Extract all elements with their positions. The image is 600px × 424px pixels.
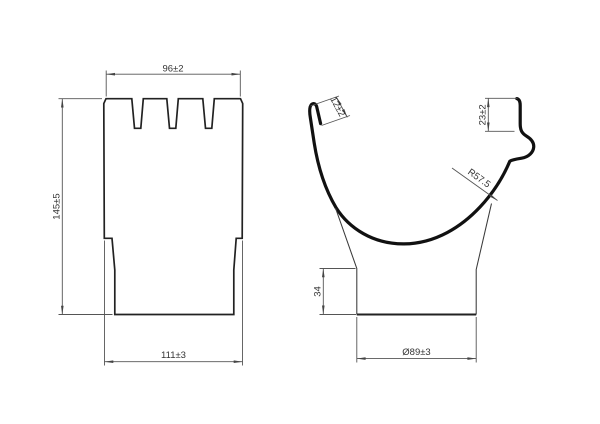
dim-bottom-width-label: 111±3 [161, 350, 186, 361]
extension-line [322, 116, 351, 126]
dim-top-width: 96±2 [106, 64, 240, 97]
radius-callout: R57.5 [452, 167, 498, 201]
side-view-profile [310, 99, 534, 244]
dim-top-width-label: 96±2 [162, 64, 183, 75]
dim-rear-edge-height-label: 23±2 [477, 104, 488, 125]
dim-outlet-diameter: Ø89±3 [357, 317, 476, 363]
dim-hook-fold-label: 12±2 [327, 95, 347, 119]
technical-drawing-page: 96±2 145±5 111±3 [0, 0, 600, 424]
dim-bottom-width: 111±3 [105, 241, 243, 366]
front-view: 96±2 145±5 111±3 [52, 64, 243, 366]
front-view-outline [104, 99, 243, 315]
dim-rear-edge-height: 23±2 [477, 98, 517, 131]
dim-height-label: 145±5 [52, 193, 63, 219]
technical-drawing-canvas: 96±2 145±5 111±3 [0, 0, 600, 424]
dim-outlet-diameter-label: Ø89±3 [402, 347, 430, 358]
dim-outlet-height: 34 [312, 269, 356, 315]
dim-outlet-height-label: 34 [312, 286, 323, 297]
side-view: 12±2 23±2 R57.5 34 [310, 95, 534, 363]
